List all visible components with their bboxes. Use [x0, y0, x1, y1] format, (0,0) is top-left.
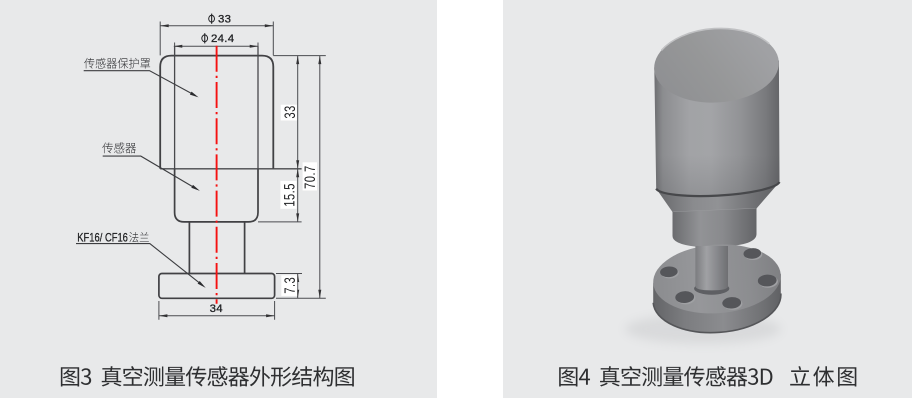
svg-text:24.4: 24.4: [211, 33, 234, 45]
svg-text:34: 34: [210, 303, 223, 315]
svg-text:KF16/ CF16: KF16/ CF16: [77, 231, 128, 244]
svg-text:33: 33: [218, 14, 231, 26]
